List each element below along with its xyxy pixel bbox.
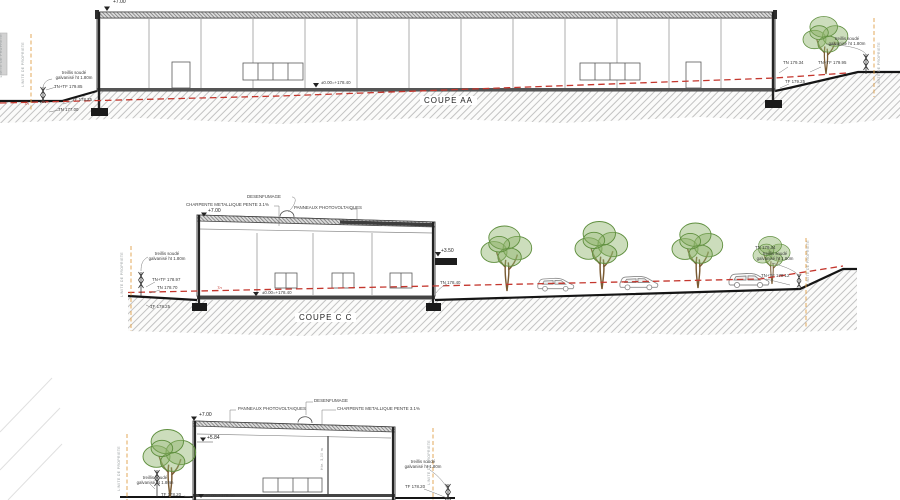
building-section-b [193,417,395,500]
car-icon [620,276,658,289]
fence-note: treillis soudé galvanisé ht 1.80m [134,475,176,485]
tn-marker: Tn [24,102,29,107]
elevation-note: TF 178.25 [72,97,92,102]
window-strip [275,273,412,288]
smoke-vent-dome [298,417,312,423]
window-strip [263,478,322,492]
floor-slab [197,296,435,300]
footing [765,100,782,108]
roof-note-charpente: CHARPENTE METALLIQUE PENTE 3.1% [186,202,269,207]
level-label-mid: +5.84 [207,436,220,442]
smoke-vent-dome [280,211,294,217]
level-label-canopy: +3.50 [441,249,454,255]
property-limit-label: LIMITE DE PROPRIETE [118,446,121,491]
door [686,62,701,88]
building-section-cc [192,211,457,311]
fence-note: treillis soudé galvanisé ht 1.80m [50,70,98,80]
fence-note: treillis soudé galvanisé ht 1.80m [144,251,190,261]
level-label-zero: ±0.00=+178.40 [321,80,351,85]
fence-icon [864,54,869,70]
coupe-b-drawing [0,378,455,500]
roof-note-panneaux: PANNEAUX PHOTOVOLTAIQUES [294,205,362,210]
elevation-note: TN+TF 178.97 [152,277,180,282]
footing [91,108,108,116]
roof-note-charpente: CHARPENTE METALLIQUE PENTE 3.1% [337,406,420,411]
section-title-cc: COUPE C C [295,313,356,322]
elevation-note: TF 178.20 [161,492,181,497]
roof-note-panneaux: PANNEAUX PHOTOVOLTAIQUES [238,406,306,411]
elevation-note: TN+TF 179.85 [54,84,82,89]
fence-icon [139,272,144,288]
elevation-note: TN 178.40 [440,280,461,285]
property-limit-label: LIMITE DE PROPRIETE [121,252,124,297]
elevation-note: TN+TF 179.12 [761,273,789,278]
level-label-zero: ±0.00=+178.40 [205,493,235,498]
roof-note-desenfumage: DESENFUMAGE [247,194,281,199]
level-label-plus7: +7.00 [199,413,212,419]
tree-icon [481,226,532,291]
door [172,62,190,88]
coupe-cc-drawing [128,197,857,336]
elevation-note: TN 177.00 [58,107,79,112]
property-limit-label: LIMITE DE PROPRIETE [22,42,25,87]
level-label-plus7: +7.00 [113,0,126,6]
level-label-plus7: +7.00 [208,209,221,215]
tree-icon [672,223,723,288]
fence-note: treillis soudé galvanisé ht 1.80m [400,459,446,469]
property-limit-label: LIMITE DE PROPRIETE [878,42,881,87]
elevation-note: TF 178.20 [405,484,425,489]
elevation-note: TF 178.25 [150,304,170,309]
tree-icon [143,430,196,498]
tn-marker: Tn [217,286,222,291]
elevation-note: TN 179.34 [783,60,804,65]
property-limit-label: LIMITE DE PROPRIETE [428,440,431,485]
elevation-note: TN+TF 179.95 [818,60,846,65]
property-limit-label: LIMITE DE PROPRIETE [807,240,810,285]
tree-icon [575,222,628,290]
fence-note: treillis soudé galvanisé ht 1.80m [824,36,870,46]
fence-note: treillis soudé galvanisé ht 1.80m [752,251,798,261]
elevation-note: TN 179.34 [755,245,776,250]
roof-note-desenfumage: DESENFUMAGE [314,398,348,403]
adjacent-sheet-hatch [0,378,62,500]
fence-icon [797,274,801,288]
car-icon [538,278,574,291]
footing [426,303,441,311]
interior-height-label: Hte. 3,00 m [321,448,324,470]
roof-band [97,12,775,18]
coupe-aa-drawing [0,7,900,125]
canopy [435,258,457,265]
elevation-note: TN 178.70 [157,285,178,290]
footing [192,303,207,311]
property-limit-label: LIMITE DE PROPRETE [0,34,3,77]
section-title-aa: COUPE AA [420,96,477,105]
elevation-note: TF 179.25 [785,79,805,84]
level-label-zero: ±0.00=+178.40 [262,290,292,295]
architectural-sections-sheet: +7.00 LIMITE DE PROPRETE LIMITE DE PROPR… [0,0,900,500]
